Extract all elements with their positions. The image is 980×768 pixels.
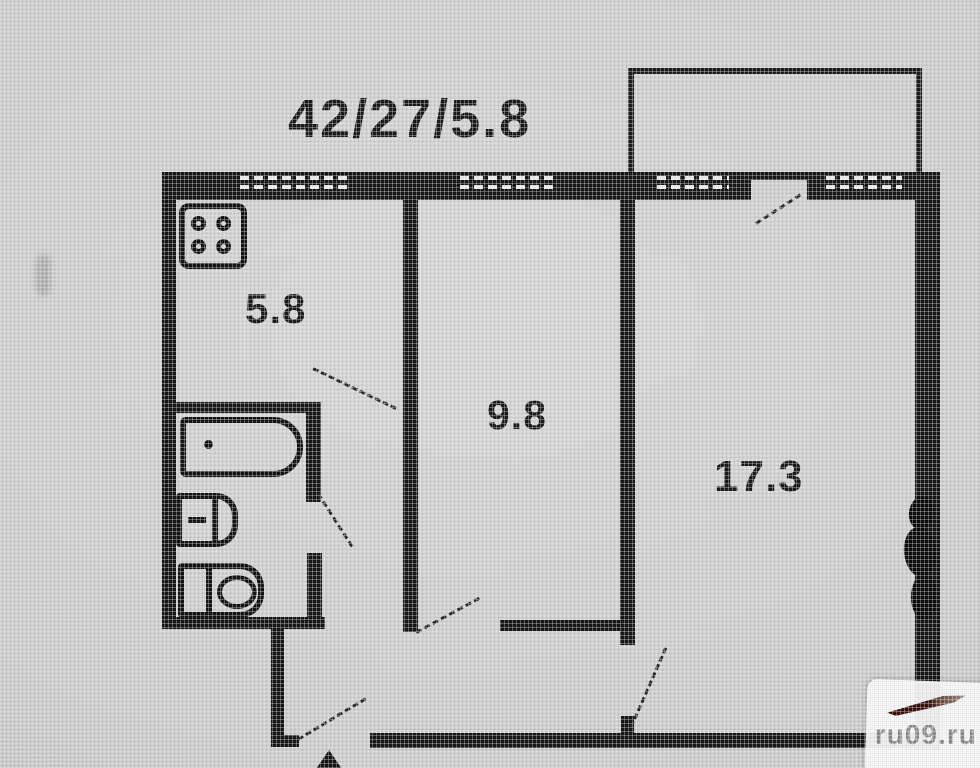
wall-rooms-divider <box>620 200 635 645</box>
wall-bathroom-top <box>162 402 320 413</box>
wall-hall-left <box>271 628 284 747</box>
stove-burner-icon <box>216 216 231 231</box>
plan-title: 42/27/5.8 <box>288 88 531 150</box>
entrance-arrow-icon <box>316 750 342 768</box>
balcony-right-line <box>916 68 922 172</box>
wall-kitchen-room-divider <box>403 200 418 632</box>
bathtub-drain-icon <box>204 440 213 449</box>
wall-right <box>915 172 940 750</box>
toilet-bowl-icon <box>217 575 257 609</box>
wall-bathroom-right-upper <box>306 402 321 502</box>
door-swing-entrance <box>297 697 366 740</box>
window-room-living-right <box>826 176 902 191</box>
window-room-middle <box>460 176 558 191</box>
wall-bathroom-bottom <box>162 617 325 629</box>
room-area-label-kitchen: 5.8 <box>245 285 306 333</box>
watermark-ru09: ru09.ru <box>864 679 980 768</box>
stove-burner-icon <box>191 216 206 231</box>
ink-blot <box>911 574 937 620</box>
sink-tap <box>188 517 206 523</box>
door-swing-bathroom <box>317 493 354 548</box>
door-swing-room-middle <box>415 597 480 634</box>
room-area-label-middle: 9.8 <box>487 392 547 439</box>
balcony-left-line <box>628 68 634 172</box>
room-area-label-living: 17.3 <box>714 452 804 502</box>
wall-bottom <box>370 733 940 748</box>
sink-icon <box>176 493 238 547</box>
stove-icon <box>179 203 247 269</box>
toilet-icon <box>178 563 264 618</box>
wall-hall-left-foot <box>271 735 299 747</box>
wall-left <box>162 172 176 628</box>
bathtub-icon <box>180 417 303 477</box>
photo-smudge <box>36 254 51 296</box>
wall-room-middle-bottom <box>500 620 627 631</box>
door-swing-room-living <box>630 647 668 728</box>
floorplan-photo: 42/27/5.8 <box>0 0 980 768</box>
sink-divider <box>212 499 218 541</box>
brush-logo-icon <box>886 693 967 719</box>
door-swing-kitchen <box>312 367 396 410</box>
toilet-tank-divider <box>206 569 212 612</box>
balcony-top-line <box>628 68 922 74</box>
stove-burner-icon <box>191 239 206 254</box>
window-kitchen <box>240 176 348 191</box>
watermark-text: ru09.ru <box>875 719 977 751</box>
window-room-living-left <box>657 176 729 191</box>
stove-burner-icon <box>216 239 231 254</box>
